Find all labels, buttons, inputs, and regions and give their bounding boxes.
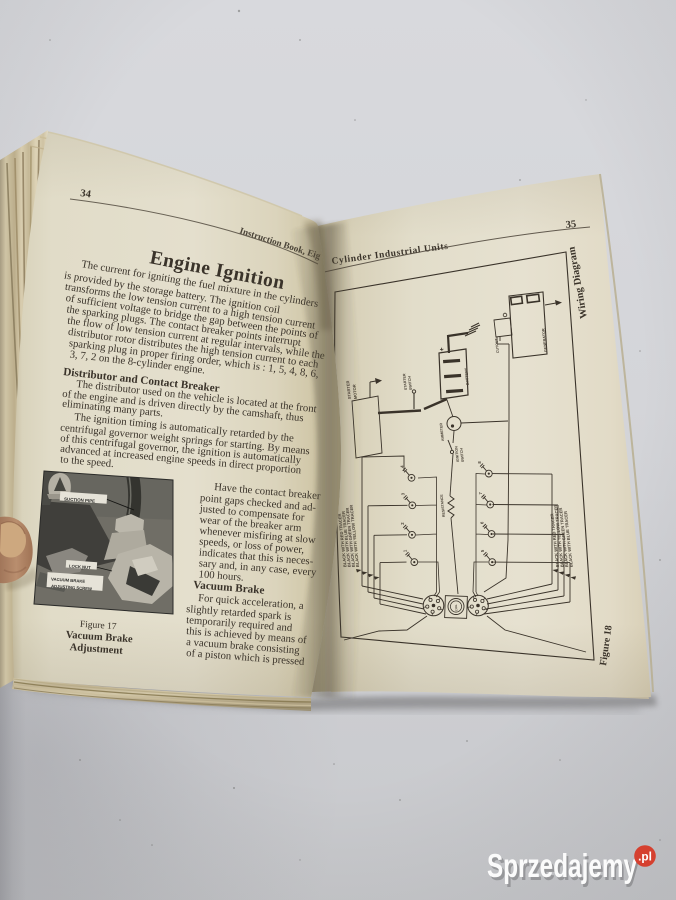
svg-text:.pl: .pl <box>638 850 652 864</box>
svg-text:Sprzedajemy: Sprzedajemy <box>487 847 637 884</box>
svg-text:COIL: COIL <box>454 604 459 611</box>
